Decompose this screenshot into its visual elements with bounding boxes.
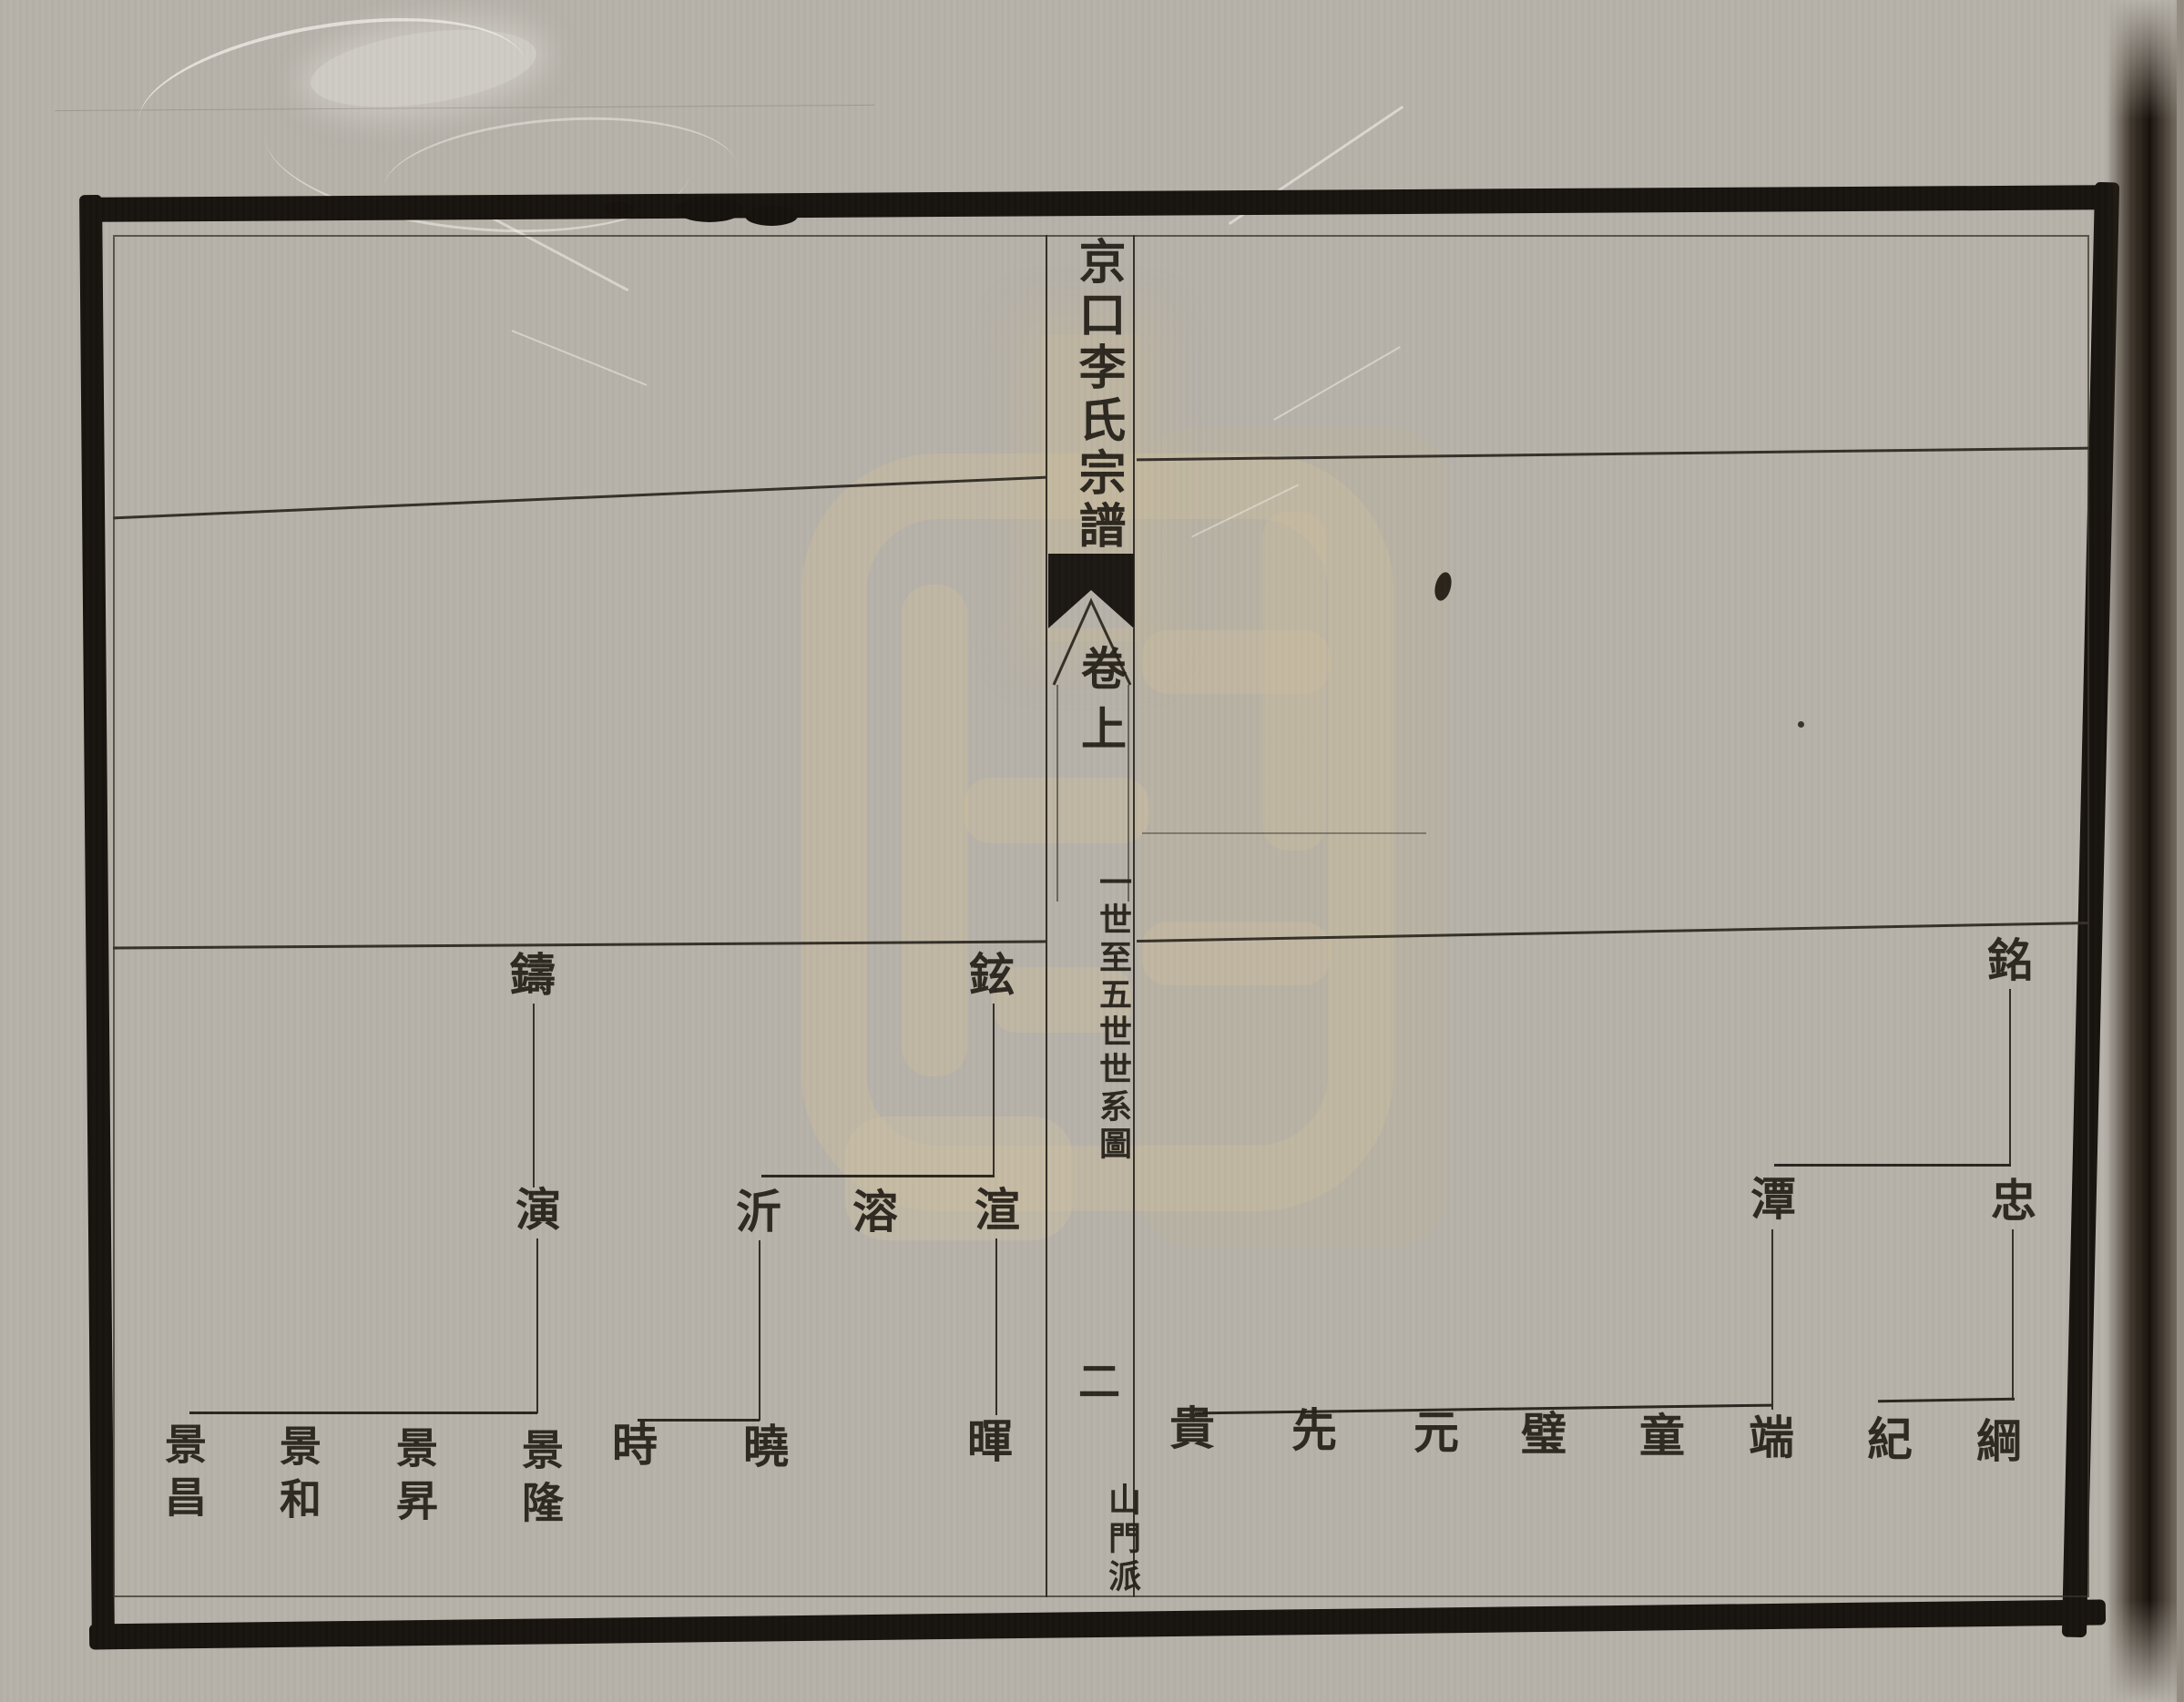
- sibling-bar: [189, 1412, 537, 1414]
- tree-node: 紀: [1867, 1417, 1913, 1462]
- tree-node: 渲: [975, 1187, 1020, 1233]
- paper-scratch-curl: [128, 0, 537, 194]
- tree-node: 先: [1291, 1408, 1337, 1453]
- branch-label: 山門派: [1098, 1483, 1146, 1597]
- border-left: [79, 195, 115, 1645]
- tree-node: 沂: [736, 1189, 781, 1235]
- connector-line: [533, 1004, 535, 1187]
- connector-line: [993, 1004, 995, 1177]
- tree-node: 景昌: [162, 1422, 204, 1528]
- tree-node: 銘: [1987, 938, 2033, 983]
- connector-line: [995, 1238, 997, 1415]
- spine-title: 京口李氏宗譜: [1064, 237, 1132, 554]
- ink-blob: [745, 206, 798, 226]
- ink-speck: [1798, 721, 1804, 728]
- tree-node: 璧: [1521, 1412, 1567, 1457]
- paper-scuff-patch: [306, 17, 541, 119]
- page-number: 二: [1078, 1361, 1120, 1402]
- ink-blob: [605, 202, 634, 216]
- tree-node: 童: [1639, 1413, 1685, 1459]
- connector-line: [1771, 1229, 1773, 1410]
- tree-node: 景和: [277, 1424, 319, 1530]
- sibling-bar: [761, 1175, 995, 1177]
- tree-node: 潭: [1750, 1177, 1796, 1222]
- border-bottom: [89, 1599, 2106, 1649]
- tree-node: 鉉: [969, 953, 1015, 998]
- tree-node: 演: [515, 1187, 561, 1233]
- connector-line: [536, 1238, 538, 1413]
- gutter-shadow: [2106, 0, 2177, 1702]
- tree-node: 曉: [743, 1424, 789, 1470]
- border-top: [84, 185, 2117, 222]
- tree-node: 端: [1749, 1415, 1794, 1461]
- tree-node: 溶: [852, 1189, 898, 1235]
- crease-rule-right: [1142, 832, 1426, 834]
- connector-line: [2009, 989, 2011, 1166]
- paper-crease-top-margin: [55, 105, 874, 111]
- sibling-bar: [1774, 1164, 2011, 1167]
- fishtail-notch: [1048, 590, 1134, 628]
- connector-line: [759, 1240, 760, 1421]
- volume-label: 卷上: [1067, 645, 1133, 765]
- ink-blob: [676, 197, 743, 222]
- scanned-genealogy-page: 京口李氏宗譜 卷上 一世至五世世系圖 二 山門派 鑄 鉉 演 沂 溶 渲 景昌 …: [0, 0, 2184, 1702]
- tree-node: 忠: [1991, 1178, 2036, 1224]
- tree-node: 元: [1413, 1410, 1459, 1455]
- tree-node: 時: [612, 1422, 658, 1468]
- paper-scratch-curl: [379, 107, 741, 252]
- page-edge-strip: [2177, 0, 2184, 1702]
- tree-node: 綱: [1976, 1419, 2022, 1464]
- tree-node: 景隆: [519, 1428, 561, 1534]
- connector-line: [2012, 1229, 2014, 1401]
- section-label: 一世至五世世系圖: [1089, 865, 1137, 1164]
- tree-node: 貴: [1169, 1406, 1215, 1452]
- spine-inner-line: [1056, 685, 1058, 902]
- tree-node: 鑄: [510, 953, 556, 998]
- tree-node: 暉: [967, 1419, 1013, 1464]
- spine-left-line: [1046, 235, 1047, 1597]
- tree-node: 景昇: [393, 1426, 435, 1532]
